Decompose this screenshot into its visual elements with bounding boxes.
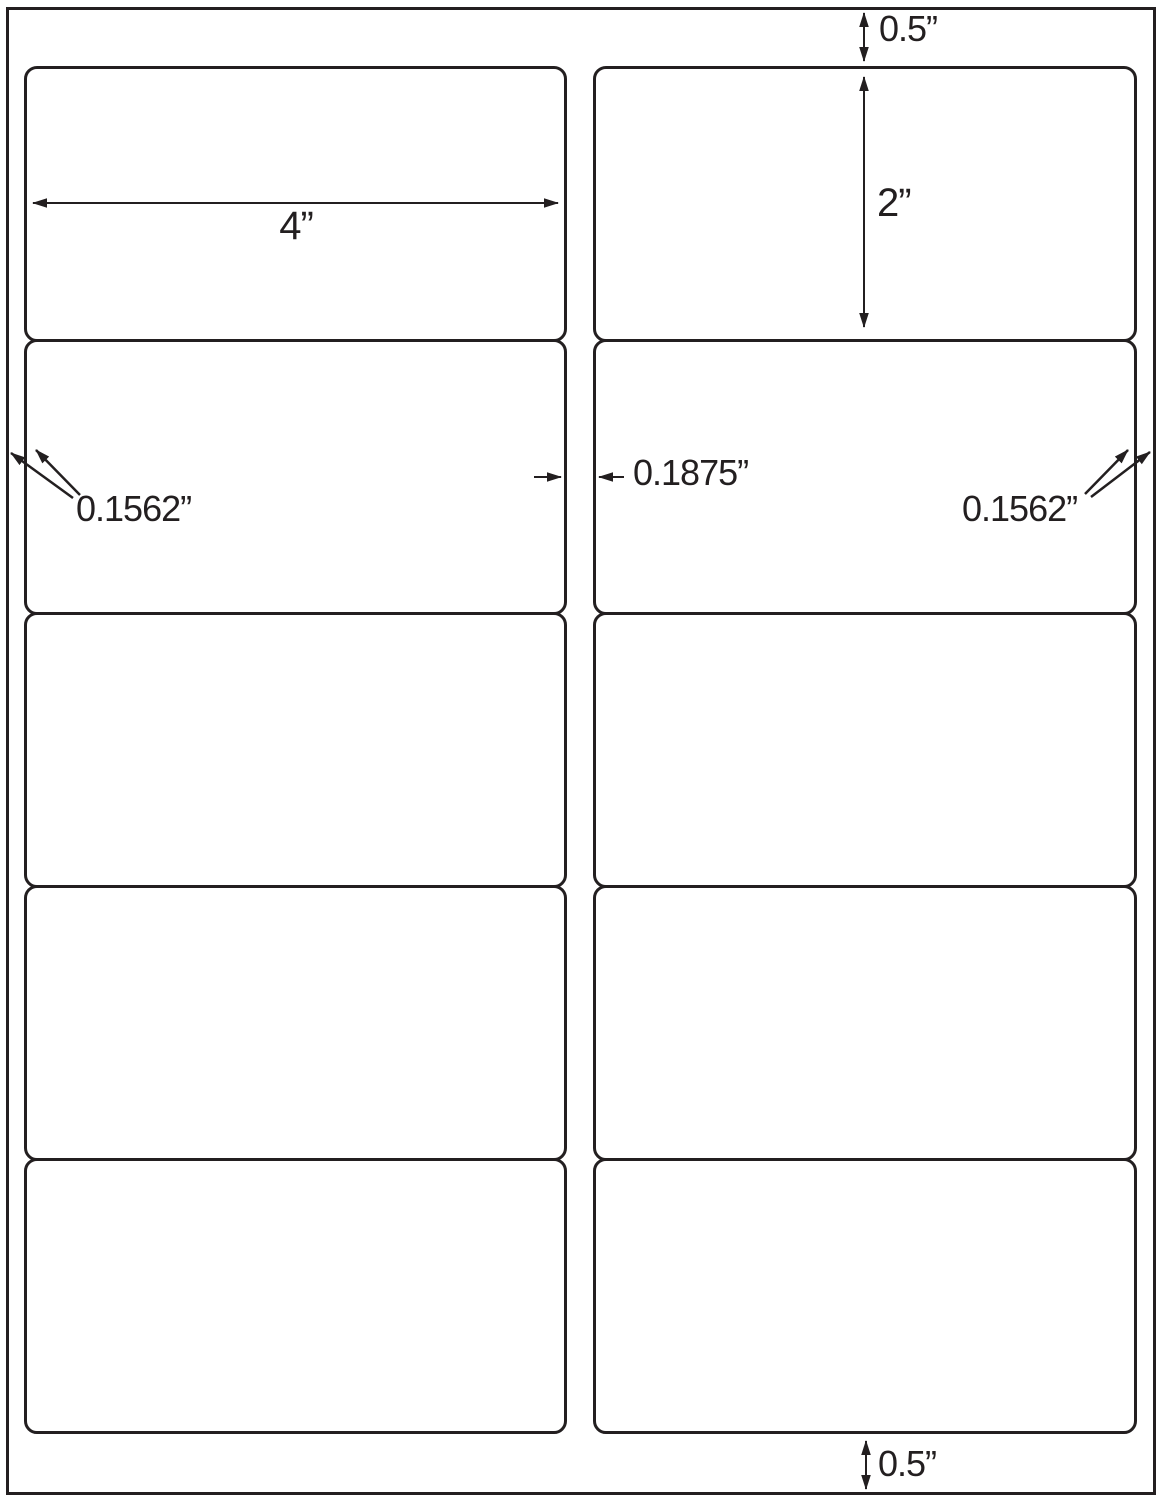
- column-gap-label: 0.1875”: [633, 455, 748, 491]
- label-cell: [593, 612, 1137, 888]
- label-height-label: 2”: [877, 183, 911, 223]
- label-cell: [593, 66, 1137, 342]
- right-margin-label: 0.1562”: [962, 491, 1077, 527]
- top-margin-label: 0.5”: [879, 11, 937, 47]
- label-cell: [24, 885, 567, 1161]
- label-cell: [24, 612, 567, 888]
- label-sheet-diagram: 0.5” 4” 2” 0.1562” 0.1875” 0.1562” 0.5”: [0, 0, 1159, 1500]
- label-cell: [593, 1158, 1137, 1434]
- label-cell: [24, 339, 567, 615]
- label-cell: [24, 1158, 567, 1434]
- left-margin-label: 0.1562”: [76, 491, 191, 527]
- label-cell: [593, 885, 1137, 1161]
- label-width-label: 4”: [279, 206, 313, 246]
- bottom-margin-label: 0.5”: [878, 1446, 936, 1482]
